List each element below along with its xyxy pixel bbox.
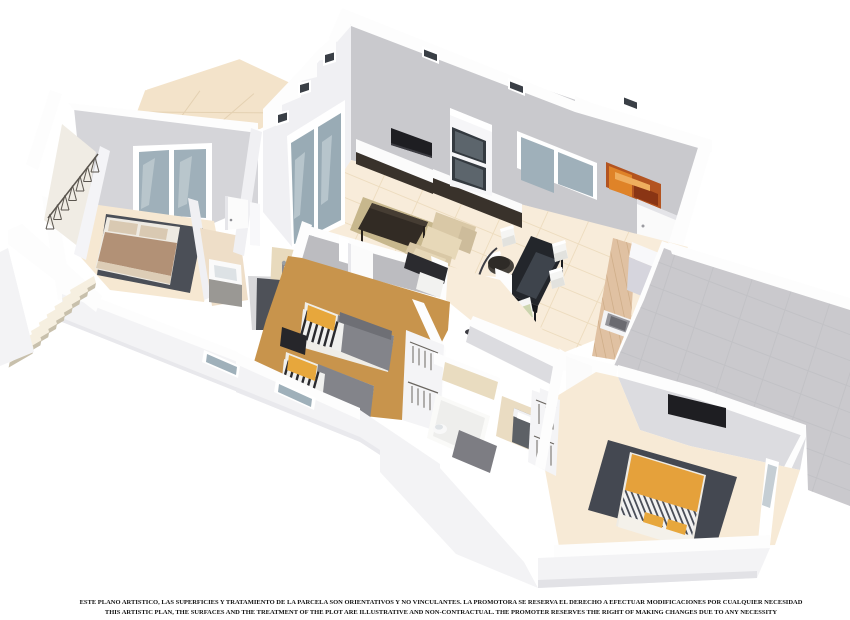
- svg-text:THIS ARTISTIC PLAN, THE SURFAC: THIS ARTISTIC PLAN, THE SURFACES AND THE…: [105, 609, 778, 616]
- svg-text:ESTE PLANO ARTISTICO, LAS SUPE: ESTE PLANO ARTISTICO, LAS SUPERFICIES Y …: [80, 599, 803, 606]
